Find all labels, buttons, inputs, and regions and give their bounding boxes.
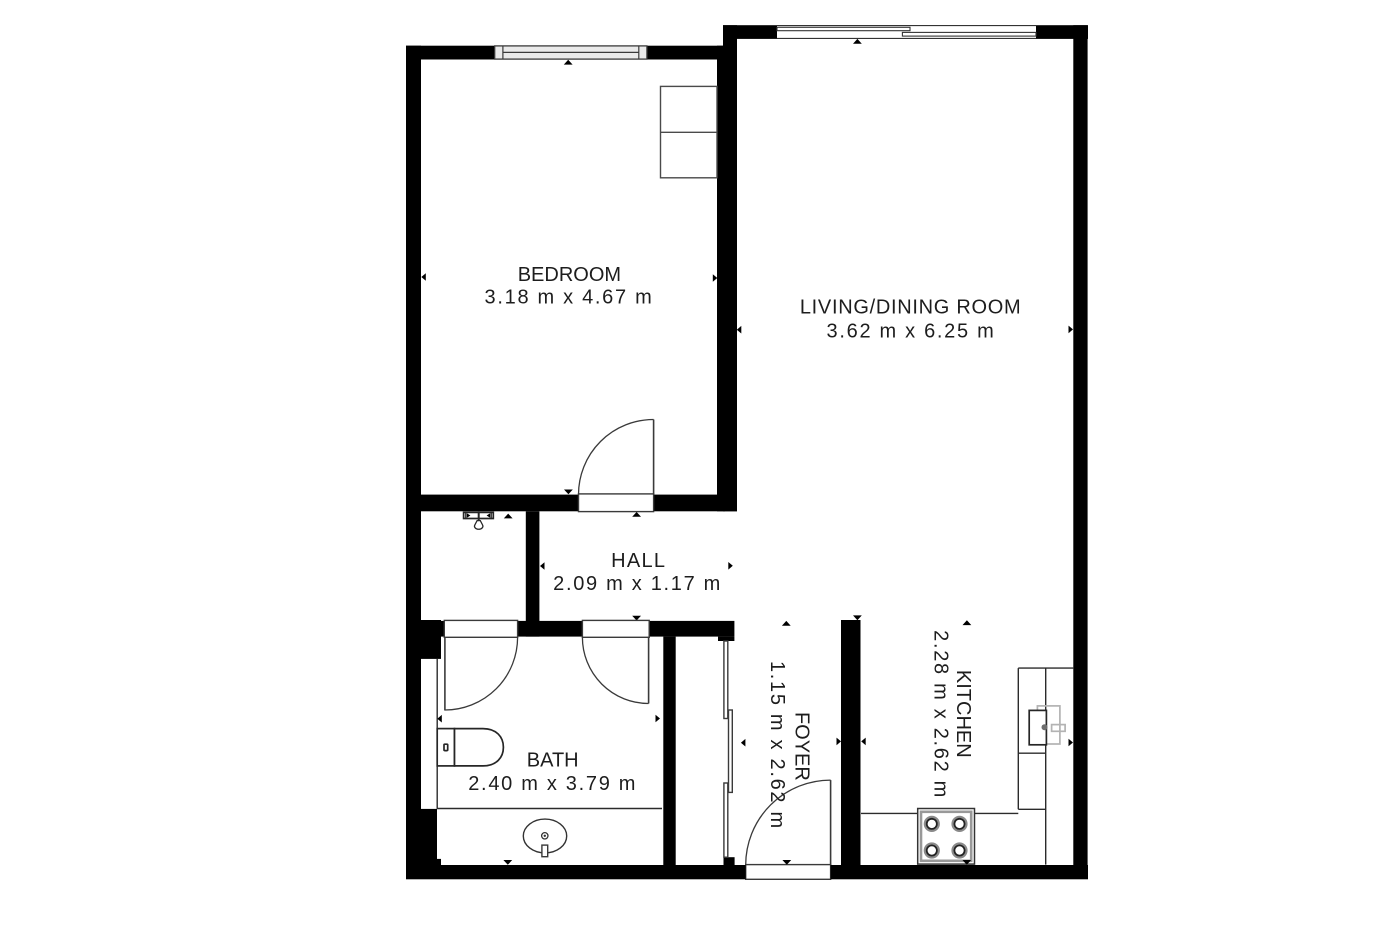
svg-text:FOYER: FOYER [791, 712, 813, 781]
svg-text:3.62 m x 6.25 m: 3.62 m x 6.25 m [827, 320, 996, 342]
svg-text:HALL: HALL [611, 550, 666, 572]
svg-text:2.28 m x 2.62 m: 2.28 m x 2.62 m [930, 630, 952, 799]
svg-text:LIVING/DINING ROOM: LIVING/DINING ROOM [800, 297, 1022, 319]
svg-text:BATH: BATH [527, 750, 579, 772]
svg-text:3.18 m x 4.67 m: 3.18 m x 4.67 m [485, 286, 654, 308]
svg-text:2.40 m x 3.79 m: 2.40 m x 3.79 m [468, 773, 637, 795]
svg-text:BEDROOM: BEDROOM [518, 264, 621, 286]
svg-text:KITCHEN: KITCHEN [952, 670, 974, 758]
svg-text:1.15 m x 2.62 m: 1.15 m x 2.62 m [766, 661, 788, 830]
svg-text:2.09 m x 1.17 m: 2.09 m x 1.17 m [553, 573, 722, 595]
